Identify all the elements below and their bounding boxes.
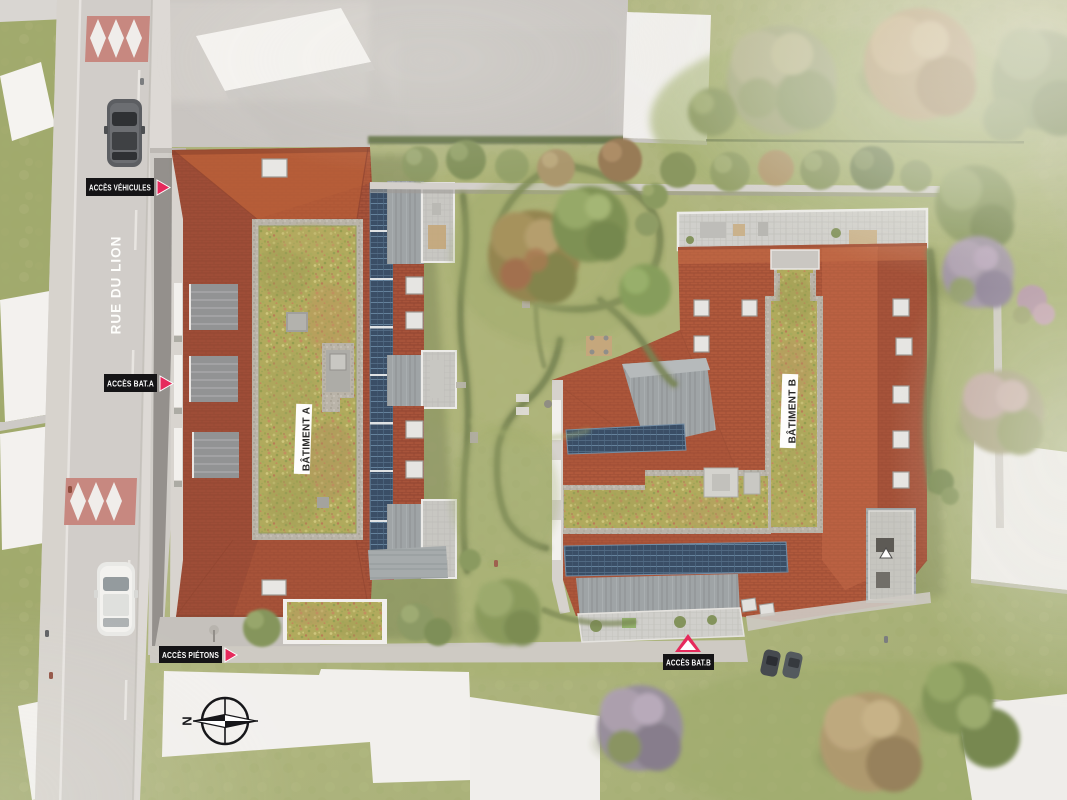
svg-text:N: N bbox=[179, 716, 194, 725]
svg-text:ACCÈS PIÉTONS: ACCÈS PIÉTONS bbox=[162, 651, 219, 660]
svg-text:RUE DU LION: RUE DU LION bbox=[109, 236, 124, 335]
svg-text:ACCÈS VÉHICULES: ACCÈS VÉHICULES bbox=[89, 184, 151, 193]
svg-text:ACCÈS BAT.B: ACCÈS BAT.B bbox=[666, 659, 711, 668]
svg-text:ACCÈS BAT.A: ACCÈS BAT.A bbox=[107, 380, 154, 389]
